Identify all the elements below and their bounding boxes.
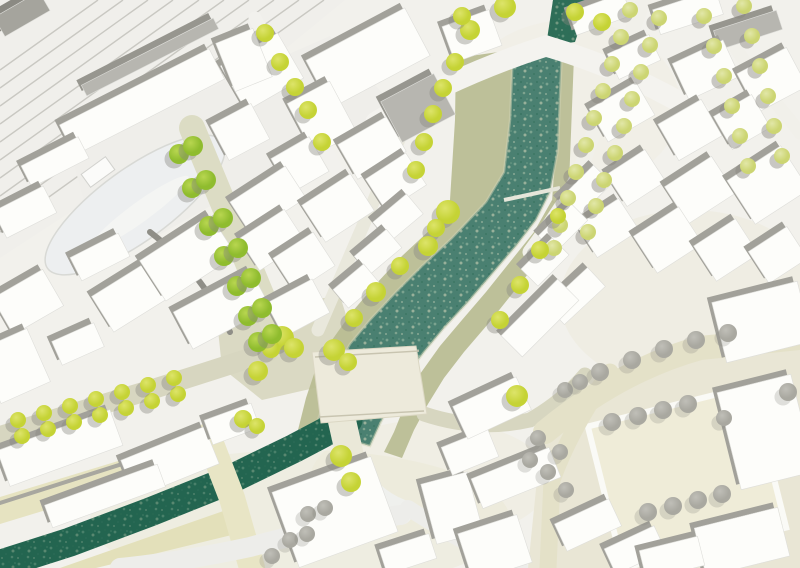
tree-canopy [530,430,546,446]
tree-canopy [642,37,658,53]
tree-canopy [603,413,621,431]
tree-canopy [531,241,549,259]
tree-canopy [140,377,156,393]
masterplan-canvas [0,0,800,568]
tree-canopy [196,170,216,190]
tree-canopy [491,311,509,329]
tree-canopy [716,410,732,426]
tree-canopy [256,24,274,42]
tree-canopy [36,405,52,421]
building [0,324,50,404]
tree-canopy [552,444,568,460]
tree-canopy [418,236,438,256]
tree-canopy [696,8,712,24]
tree-canopy [415,133,433,151]
tree-canopy [578,137,594,153]
tree-canopy [596,172,612,188]
masterplan-svg [0,0,800,568]
tree-canopy [62,398,78,414]
tree-canopy [752,58,768,74]
tree-canopy [719,324,737,342]
tree-canopy [506,385,528,407]
tree-canopy [580,224,596,240]
tree-canopy [317,500,333,516]
tree-canopy [586,110,602,126]
tree-canopy [591,363,609,381]
tree-canopy [299,526,315,542]
tree-canopy [639,503,657,521]
tree-canopy [522,452,538,468]
tree-canopy [249,418,265,434]
tree-canopy [568,164,584,180]
building-roof [0,329,50,404]
building [0,264,64,334]
tree-canopy [687,331,705,349]
tree-canopy [566,3,584,21]
building-roof [0,269,64,334]
tree-canopy [624,91,640,107]
tree-canopy [604,56,620,72]
tree-canopy [613,29,629,45]
tree-canopy [766,118,782,134]
tree-canopy [424,105,442,123]
new-tree-icon [490,0,516,22]
tree-canopy [241,268,261,288]
tree-canopy [88,391,104,407]
tree-canopy [706,38,722,54]
tree-canopy [407,161,425,179]
tree-canopy [623,351,641,369]
tree-canopy [593,13,611,31]
tree-canopy [286,78,304,96]
tree-canopy [679,395,697,413]
tree-canopy [391,257,409,275]
tree-canopy [558,482,574,498]
tree-canopy [713,485,731,503]
tree-canopy [664,497,682,515]
tree-canopy [262,324,282,344]
tree-canopy [654,401,672,419]
tree-canopy [446,53,464,71]
tree-canopy [774,148,790,164]
tree-canopy [511,276,529,294]
tree-canopy [760,88,776,104]
tree-canopy [330,445,352,467]
tree-canopy [732,128,748,144]
tree-canopy [560,190,576,206]
tree-canopy [434,79,452,97]
tree-canopy [252,298,272,318]
tree-canopy [341,472,361,492]
tree-canopy [248,361,268,381]
tree-canopy [345,309,363,327]
tree-canopy [271,53,289,71]
tree-canopy [228,238,248,258]
tree-canopy [588,198,604,214]
tree-canopy [779,383,797,401]
tree-canopy [716,68,732,84]
building [47,318,105,365]
tree-canopy [655,340,673,358]
tree-canopy [607,145,623,161]
tree-canopy [724,98,740,114]
tree-canopy [740,158,756,174]
tree-canopy [264,548,280,564]
tree-canopy [366,282,386,302]
tree-canopy [114,384,130,400]
tree-canopy [572,374,588,390]
tree-canopy [299,101,317,119]
tree-canopy [166,370,182,386]
tree-canopy [550,208,566,224]
tree-canopy [427,219,445,237]
tree-canopy [213,208,233,228]
tree-canopy [595,83,611,99]
tree-canopy [284,338,304,358]
tree-canopy [622,2,638,18]
tree-canopy [453,7,471,25]
tree-canopy [651,10,667,26]
tree-canopy [629,407,647,425]
tree-canopy [10,412,26,428]
tree-canopy [689,491,707,509]
tree-canopy [633,64,649,80]
tree-canopy [183,136,203,156]
tree-canopy [540,464,556,480]
tree-canopy [744,28,760,44]
tree-canopy [339,353,357,371]
tree-canopy [616,118,632,134]
tree-canopy [313,133,331,151]
